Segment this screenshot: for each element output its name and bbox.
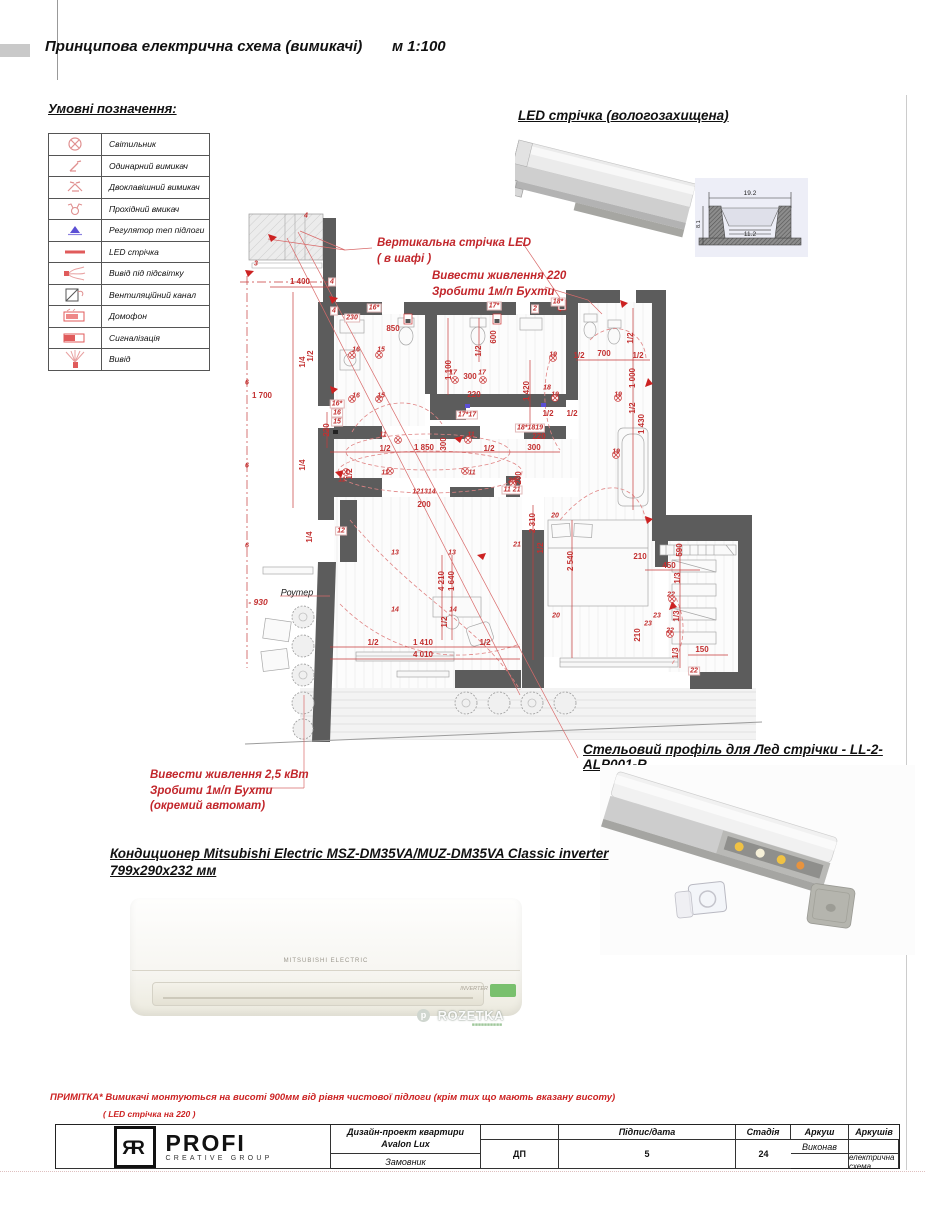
legend-label: Вивід під підсвітку <box>102 263 209 284</box>
tb-sheets-header: Аркушів <box>849 1125 899 1140</box>
legend-label: Двоклавішний вимикач <box>102 177 209 198</box>
xsec-width-top: 19.2 <box>744 190 757 197</box>
legend-row: Вивід під підсвітку <box>49 263 209 285</box>
tb-stage-value: ДП <box>481 1140 559 1169</box>
tb-sheet-header: Аркуш <box>791 1125 849 1140</box>
tb-stage-header: Стадія <box>736 1125 791 1140</box>
profi-logo-icon: R R <box>114 1126 156 1168</box>
single-switch-icon <box>49 156 102 177</box>
tb-project-line1: Дизайн-проект квартири <box>347 1127 464 1139</box>
tb-project-line2: Avalon Lux <box>381 1139 430 1151</box>
switch-point-symbol <box>480 377 487 384</box>
intercom-icon <box>49 306 102 327</box>
logo-sub: CREATIVE GROUP <box>166 1155 273 1162</box>
ac-heading-line1: Кондиционер Mitsubishi Electric MSZ-DM35… <box>110 846 609 861</box>
tb-project: Дизайн-проект квартири Avalon Lux <box>331 1125 481 1154</box>
legend-row: Сигналізація <box>49 328 209 350</box>
legend-label: LED стрічка <box>102 242 209 263</box>
drawing-sheet: { "page": { "title": "Принципова електри… <box>0 0 925 1212</box>
legend-label: Вивід <box>102 349 209 370</box>
legend-row: Вентиляційний канал <box>49 285 209 307</box>
legend-row: Світильник <box>49 134 209 156</box>
legend-label: Вентиляційний канал <box>102 285 209 306</box>
vent-channel-icon <box>49 285 102 306</box>
legend-title: Умовні позначення: <box>48 101 177 116</box>
legend-row: Двоклавішний вимикач <box>49 177 209 199</box>
ac-heading-line2: 799х290х232 мм <box>110 863 216 878</box>
tb-executor-sign <box>849 1140 899 1154</box>
switch-point-symbol <box>615 395 622 402</box>
switch-point-symbol <box>613 452 620 459</box>
legend-row: Прохідний вмикач <box>49 199 209 221</box>
switch-point-symbol <box>550 355 557 362</box>
tb-sheet-value: 5 <box>559 1140 736 1169</box>
switch-point-symbol <box>376 396 383 403</box>
bottom-page-border <box>0 1171 925 1172</box>
rozetka-icon: p <box>417 1009 430 1022</box>
tb-customer-sign <box>791 1154 849 1169</box>
light-fixture-icon <box>49 134 102 155</box>
title-block: R R PROFI CREATIVE GROUP Підпис/дата Диз… <box>55 1124 900 1169</box>
tb-sheets-value: 24 <box>736 1140 791 1169</box>
switch-point-symbol <box>349 352 356 359</box>
ac-brand-text: MITSUBISHI ELECTRIC <box>130 958 522 964</box>
ac-inverter-badge <box>490 984 516 997</box>
switch-point-symbol <box>376 352 383 359</box>
ac-inverter-text: INVERTER <box>460 986 488 992</box>
logo-cell: R R PROFI CREATIVE GROUP <box>56 1125 331 1169</box>
legend-label: Прохідний вмикач <box>102 199 209 220</box>
tb-customer-label: Замовник <box>331 1154 481 1169</box>
legend-row: Вивід <box>49 349 209 371</box>
alarm-icon <box>49 328 102 349</box>
legend-label: Одинарний вимикач <box>102 156 209 177</box>
tb-empty <box>481 1125 559 1140</box>
floor-heating-regulator-icon <box>49 220 102 241</box>
rozetka-sub: ■■■■■■■■■■ <box>472 1022 502 1028</box>
page-title: Принципова електрична схема (вимикачі) <box>45 38 362 55</box>
svg-text:R: R <box>131 1138 145 1159</box>
legend-label: Сигналізація <box>102 328 209 349</box>
legend-label: Домофон <box>102 306 209 327</box>
legend-label: Регулятор теп підлоги <box>102 220 209 241</box>
callout-vertical-led: Вертикальна стрічка LED( в шафі ) <box>377 236 531 267</box>
switch-point-symbol <box>387 468 394 475</box>
switch-point-symbol <box>395 437 402 444</box>
output-icon <box>49 349 102 370</box>
switch-point-symbol <box>667 631 674 638</box>
legend-row: Регулятор теп підлоги <box>49 220 209 242</box>
double-switch-icon <box>49 177 102 198</box>
note-line2: ( LED стрічка на 220 ) <box>103 1109 195 1119</box>
legend-row: Домофон <box>49 306 209 328</box>
backlight-output-icon <box>49 263 102 284</box>
legend-row: LED стрічка <box>49 242 209 264</box>
legend-row: Одинарний вимикач <box>49 156 209 178</box>
scale-label: м 1:100 <box>392 38 446 55</box>
ac-vent <box>152 982 484 1006</box>
tb-executor-label: Виконав <box>791 1140 849 1154</box>
logo-name: PROFI <box>166 1132 273 1155</box>
tb-signature-header: Підпис/дата <box>559 1125 736 1140</box>
switch-point-symbol <box>462 468 469 475</box>
right-page-border <box>906 95 907 1170</box>
ceiling-profile-photo <box>600 765 915 955</box>
callout-power-25: Вивести живлення 2,5 кВтЗробити 1м/п Бух… <box>150 768 309 815</box>
switch-point-symbol <box>669 596 676 603</box>
legend-table: СвітильникОдинарний вимикачДвоклавішний … <box>48 133 210 371</box>
led-strip-icon <box>49 242 102 263</box>
corner-mark <box>0 44 30 57</box>
profile-end-cap <box>806 883 855 929</box>
switch-point-symbol <box>349 396 356 403</box>
note-line1: ПРИМІТКА* Вимикачі монтуються на висоті … <box>50 1092 615 1103</box>
tb-sheet-title: Принципова електрична схема (вимикачі) <box>849 1154 899 1169</box>
switch-point-symbol <box>343 469 350 476</box>
pass-switch-icon <box>49 199 102 220</box>
ac-split-line <box>132 970 520 971</box>
led-strip-heading: LED стрічка (вологозахищена) <box>518 108 729 123</box>
legend-label: Світильник <box>102 134 209 155</box>
switch-point-symbol <box>452 377 459 384</box>
switch-point-symbol <box>465 437 472 444</box>
callout-power-220: Вивести живлення 220Зробити 1м/п Бухти <box>432 269 566 300</box>
closet-hatch <box>249 214 323 268</box>
switch-point-symbol <box>552 395 559 402</box>
switch-point-symbol <box>510 480 517 487</box>
rozetka-watermark: ROZETKA <box>438 1008 504 1023</box>
ac-unit-photo: MITSUBISHI ELECTRIC INVERTER p ROZETKA ■… <box>130 892 522 1044</box>
